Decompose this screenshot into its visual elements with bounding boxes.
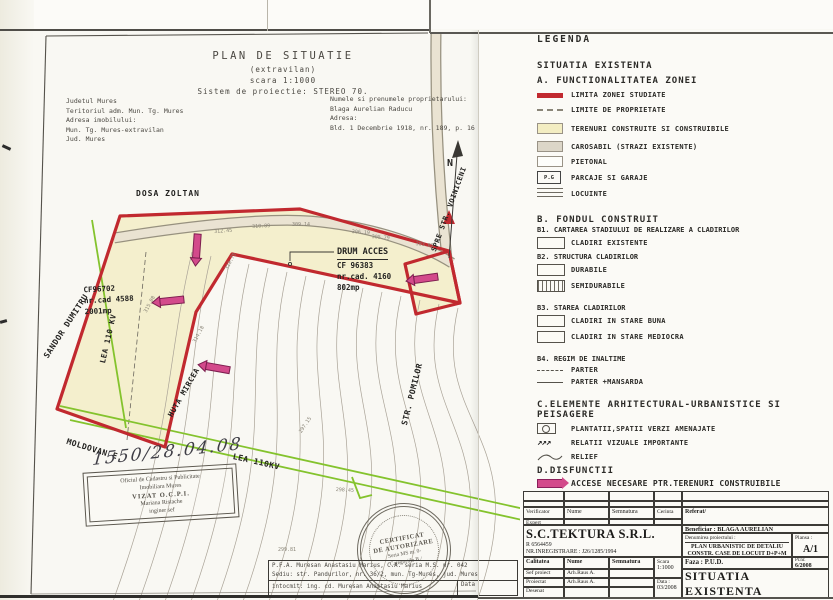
- elevation-label: 299.81: [278, 547, 296, 553]
- access-arrow: [197, 359, 230, 375]
- author-info-box-row2: intocmit: ing. cd. Muresan Anastasiu Mar…: [268, 581, 518, 596]
- plan-frame-top: [46, 33, 428, 36]
- calitatea-cell: Calitatea: [523, 557, 564, 569]
- north-arrow-head: [452, 140, 463, 158]
- legend-item: SEMIDURABILE: [537, 280, 829, 292]
- legend-item: ↗↗↗ RELATII VIZUALE IMPORTANTE: [537, 438, 829, 448]
- legend-item: PARTER +MANSARDA: [537, 378, 829, 386]
- legend-item: P.G PARCAJE SI GARAJE: [537, 171, 829, 184]
- ground-floor-dash-icon: [537, 370, 563, 371]
- scan-artifact: [429, 0, 431, 33]
- scara-cell: Scara 1:1000: [654, 557, 682, 578]
- label-drum-area: 802mp: [337, 282, 391, 293]
- staff-name: Arh.Raus A.: [564, 578, 609, 587]
- semi-durable-hatch-box-icon: [537, 280, 565, 292]
- legend-b2-title: B2. STRUCTURA CLADIRILOR: [537, 253, 829, 261]
- semnatura2-cell: Semnatura: [609, 557, 654, 569]
- plansa-cell: Plansa : A/1: [792, 533, 829, 557]
- plan-subtitle: (extravilan): [168, 65, 398, 74]
- legend-section-d-title: D.DISFUNCTII: [537, 466, 829, 476]
- legend-item: LIMITE DE PROPRIETATE: [537, 106, 829, 114]
- parking-garage-box-icon: P.G: [537, 171, 561, 184]
- green-space-box-icon: [537, 423, 556, 434]
- nume2-cell: Nume: [564, 557, 609, 569]
- legend-item: PARTER: [537, 366, 829, 374]
- plan-title: PLAN DE SITUATIE: [168, 50, 398, 62]
- elevation-label: 310.89: [252, 223, 270, 230]
- title-block-table: Verificator Nume Semnatura Cerinta Refer…: [523, 491, 831, 598]
- elevation-label: 312.45: [214, 228, 232, 235]
- legend-title: LEGENDA: [537, 34, 829, 45]
- location-info: Judetul Mures Teritoriul adm. Mun. Tg. M…: [66, 97, 183, 145]
- page-fold-line: [478, 30, 479, 598]
- medium-state-box-icon: [537, 331, 565, 343]
- author-info-box: P.F.A. Muresan Anastasiu Marius, C.A. se…: [268, 560, 518, 581]
- label-drum-cf: CF 96383: [337, 260, 391, 271]
- label-drum-acces: DRUM ACCES: [337, 247, 388, 260]
- durable-box-icon: [537, 264, 565, 276]
- legend-item: PLANTATII,SPATII VERZI AMENAJATE: [537, 423, 829, 434]
- legend-b1-title: B1. CARTAREA STADIULUI DE REALIZARE A CL…: [537, 226, 829, 234]
- company-name: S.C.TEKTURA S.R.L.: [526, 527, 679, 542]
- referat-cell: Referat/: [682, 507, 829, 525]
- legend-existing-heading: SITUATIA EXISTENTA: [537, 61, 829, 71]
- legend-item: DURABILE: [537, 264, 829, 276]
- buildable-land-area-icon: [537, 123, 563, 134]
- legend-item: TERENURI CONSTRUITE SI CONSTRUIBILE: [537, 123, 829, 134]
- drum-acces-block: DRUM ACCES CF 96383 nr.cad. 4160 802mp: [337, 246, 391, 293]
- prnr-cell: Pr.nr. 6/2008: [792, 557, 829, 569]
- legend-item: LIMITA ZONEI STUDIATE: [537, 91, 829, 99]
- scan-artifact: [0, 595, 478, 598]
- north-label: N: [447, 158, 454, 169]
- scan-artifact: [0, 29, 430, 31]
- legend-item: CLADIRI IN STARE BUNA: [537, 315, 829, 327]
- semnatura-header-cell: Semnatura: [609, 507, 654, 519]
- legend-item: PIETONAL: [537, 156, 829, 167]
- owner-info: Numele si prenumele proprietarului: Blag…: [330, 95, 475, 133]
- scanned-plan-sheet: PLAN DE SITUATIE (extravilan) scara 1:10…: [0, 0, 833, 600]
- contour-line: [294, 280, 325, 600]
- elevation-label: 306.19: [352, 229, 370, 236]
- project-name-cell: Denumirea proiectului : PLAN URBANISTIC …: [682, 533, 792, 557]
- verificator-cell: Verificator: [523, 507, 564, 519]
- roadway-area-icon: [537, 141, 563, 152]
- parcel-cf-block: CF96702 nr.cad 4588 2001mp: [83, 282, 134, 318]
- legend-item: ACCESE NECESARE PTR.TERENURI CONSTRUIBIL…: [537, 479, 829, 488]
- power-line-branch: [352, 477, 372, 498]
- relief-curve-icon: [537, 452, 563, 462]
- plan-scale: scara 1:1000: [168, 76, 398, 85]
- legend-b4-title: B4. REGIM DE INALTIME: [537, 355, 829, 363]
- legend-item: CLADIRI IN STARE MEDIOCRA: [537, 331, 829, 343]
- legend-section-b-title: B. FONDUL CONSTRUIT: [537, 215, 829, 225]
- scan-artifact: [267, 0, 268, 31]
- legend-section-a-title: A. FUNCTIONALITATEA ZONEI: [537, 76, 829, 86]
- legend-item: LOCUINTE: [537, 188, 829, 199]
- required-access-arrow-icon: [537, 479, 563, 488]
- mansard-line-icon: [537, 382, 563, 383]
- property-limit-line-icon: [537, 109, 563, 111]
- legend-item: CAROSABIL (STRAZI EXISTENTE): [537, 141, 829, 152]
- visual-relation-arrows-icon: ↗↗↗: [537, 438, 550, 448]
- legend-b3-title: B3. STAREA CLADIRILOR: [537, 304, 829, 312]
- company-cell: S.C.TEKTURA S.R.L. R 6564459 NR.INREGIST…: [523, 525, 682, 557]
- data-cell: Data : 03/2008: [654, 578, 682, 598]
- beneficiar-cell: Beneficiar : BLAGA AURELIAN: [682, 525, 829, 533]
- ocpi-stamp: Oficiul de Cadastru si Publicitate Imobi…: [82, 463, 239, 526]
- study-limit-line-icon: [537, 93, 563, 98]
- good-state-box-icon: [537, 315, 565, 327]
- cerinta-cell: Cerinta: [654, 507, 682, 519]
- data-cell: Data: [457, 581, 517, 595]
- legend-section-c-title: C.ELEMENTE ARHITECTURAL-URBANISTICE SI P…: [537, 400, 829, 420]
- existing-building-box-icon: [537, 237, 565, 249]
- housing-lines-icon: [537, 188, 563, 199]
- sheet-title-cell: SITUATIA EXISTENTA: [682, 569, 829, 598]
- nume-header-cell: Nume: [564, 507, 609, 519]
- legend-item: RELIEF: [537, 452, 829, 462]
- legend-panel: LEGENDA SITUATIA EXISTENTA A. FUNCTIONAL…: [537, 34, 829, 490]
- staff-role: Sef proiect: [523, 569, 564, 578]
- legend-item: CLADIRI EXISTENTE: [537, 237, 829, 249]
- faza-cell: Faza : P.U.D.: [682, 557, 792, 569]
- scan-artifact: [430, 32, 833, 34]
- label-dosa-zoltan: DOSA ZOLTAN: [136, 189, 200, 198]
- scan-artifact: [478, 597, 833, 599]
- plan-title-block: PLAN DE SITUATIE (extravilan) scara 1:10…: [168, 50, 398, 98]
- pedestrian-area-icon: [537, 156, 563, 167]
- staff-name: Arh.Raus A.: [564, 569, 609, 578]
- label-drum-cad: nr.cad. 4160: [337, 271, 391, 282]
- staff-role: Proiectat: [523, 578, 564, 587]
- contour-line: [320, 284, 348, 600]
- plan-frame-left: [31, 36, 46, 594]
- elevation-label: 309.14: [292, 222, 310, 228]
- elevation-label: 298.45: [336, 487, 354, 494]
